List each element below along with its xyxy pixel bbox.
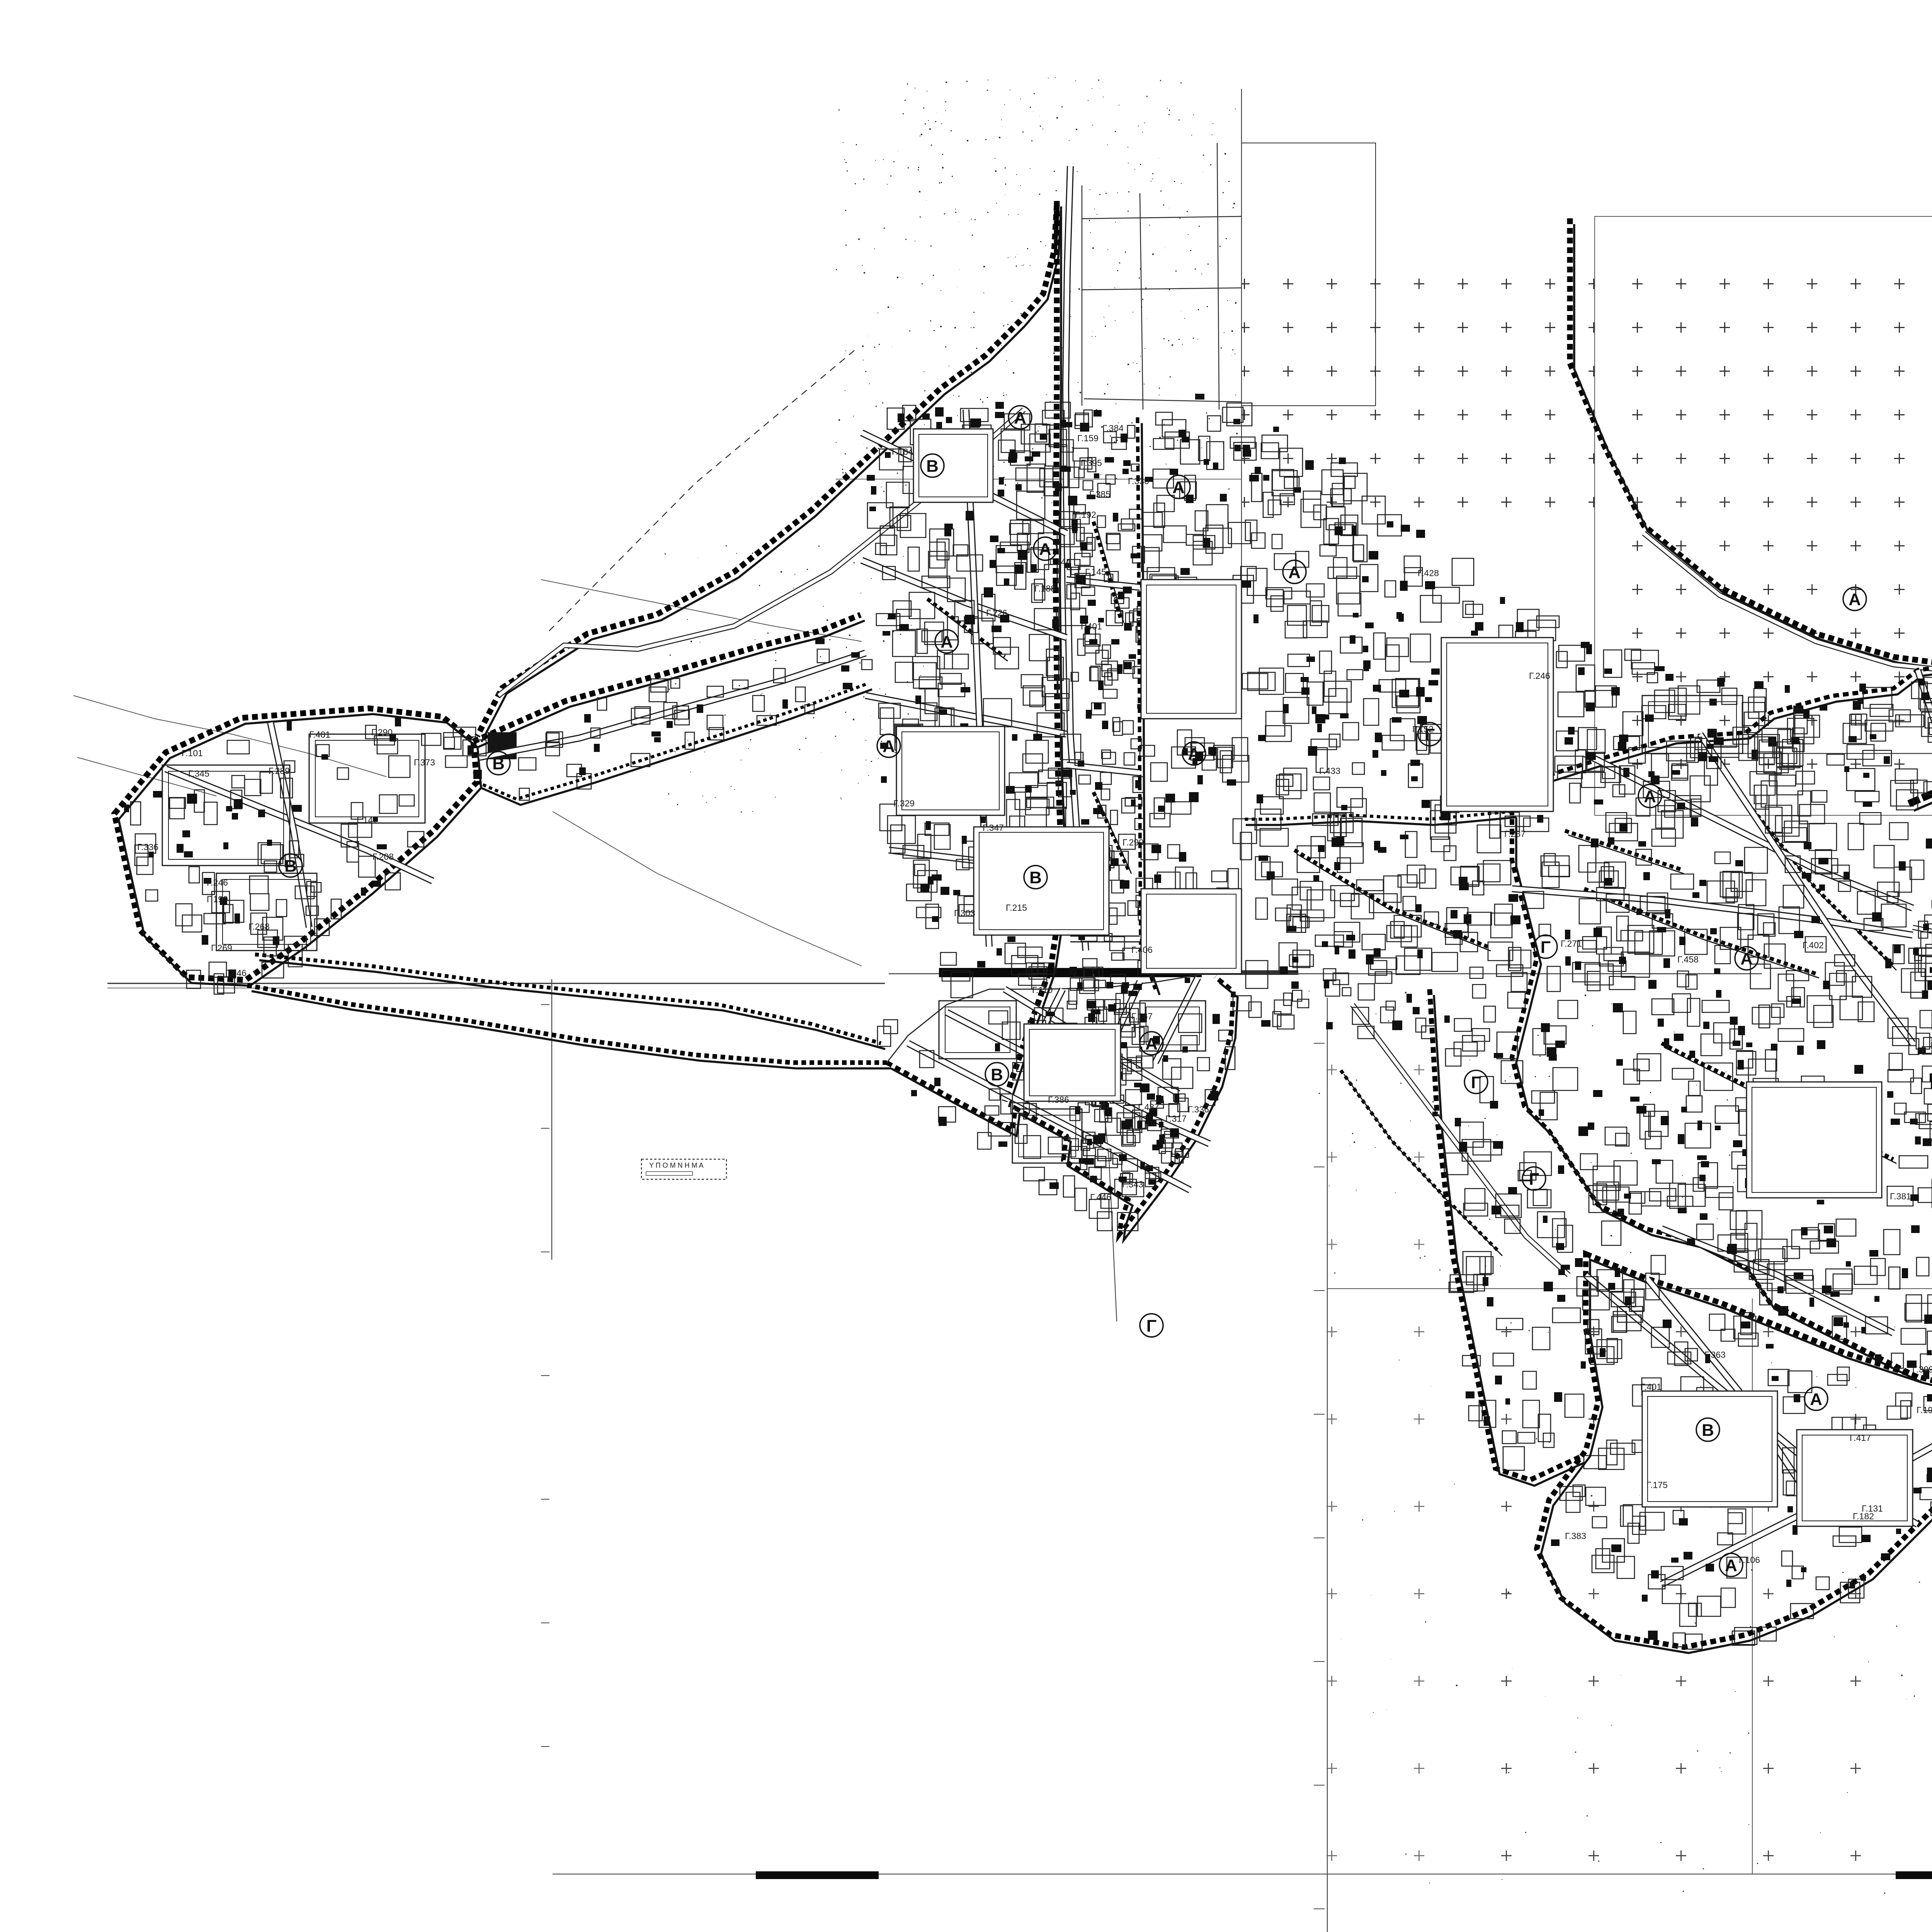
svg-text:A: A <box>1849 590 1861 609</box>
svg-text:Γ.271: Γ.271 <box>1561 939 1582 949</box>
svg-text:Γ.215: Γ.215 <box>1006 903 1027 913</box>
svg-text:Γ.175: Γ.175 <box>1646 1480 1668 1490</box>
svg-text:B: B <box>492 754 505 773</box>
svg-text:Γ.192: Γ.192 <box>1075 510 1096 520</box>
svg-text:Γ.289: Γ.289 <box>269 766 290 776</box>
svg-text:Γ.437: Γ.437 <box>1138 1102 1159 1112</box>
svg-text:Γ.329: Γ.329 <box>893 798 915 808</box>
svg-text:Γ.347: Γ.347 <box>983 823 1004 833</box>
svg-text:Γ.406: Γ.406 <box>1131 945 1153 955</box>
svg-text:Γ.384: Γ.384 <box>1102 423 1124 433</box>
svg-text:Γ.401: Γ.401 <box>1640 1382 1662 1392</box>
svg-text:Γ.401: Γ.401 <box>309 730 330 740</box>
svg-text:A: A <box>1725 1556 1737 1575</box>
svg-text:B: B <box>284 857 297 876</box>
svg-text:Γ.131: Γ.131 <box>1862 1503 1883 1514</box>
svg-text:Γ.446: Γ.446 <box>1090 1192 1111 1202</box>
svg-text:Γ.317: Γ.317 <box>1165 1114 1187 1124</box>
svg-text:B: B <box>1029 868 1042 887</box>
svg-text:Γ.303: Γ.303 <box>954 908 975 918</box>
svg-text:A: A <box>1188 745 1200 764</box>
svg-text:Γ.336: Γ.336 <box>1188 1104 1209 1114</box>
svg-text:Γ.167: Γ.167 <box>1131 1011 1153 1021</box>
svg-text:Γ.226: Γ.226 <box>986 608 1007 618</box>
svg-text:Γ.373: Γ.373 <box>414 757 435 767</box>
svg-text:Γ.346: Γ.346 <box>225 968 247 978</box>
svg-text:A: A <box>1740 949 1753 968</box>
svg-text:B: B <box>1702 1421 1714 1440</box>
svg-text:Γ.381: Γ.381 <box>1890 1191 1911 1201</box>
svg-text:Γ.106: Γ.106 <box>1739 1555 1760 1565</box>
svg-text:Γ.188: Γ.188 <box>1034 583 1056 594</box>
svg-text:Γ.199: Γ.199 <box>207 894 228 904</box>
svg-text:Γ.110: Γ.110 <box>1032 985 1053 995</box>
svg-text:Γ.152: Γ.152 <box>1412 724 1434 734</box>
svg-text:Γ.428: Γ.428 <box>1418 568 1439 578</box>
svg-text:B: B <box>991 1065 1003 1084</box>
svg-text:Γ: Γ <box>1146 1316 1156 1335</box>
svg-text:Γ.330: Γ.330 <box>1128 476 1149 486</box>
svg-text:Γ.417: Γ.417 <box>1850 1433 1871 1443</box>
svg-text:Γ.193: Γ.193 <box>1917 1405 1932 1415</box>
svg-text:A: A <box>1172 478 1185 497</box>
svg-text:Γ.269: Γ.269 <box>211 943 232 953</box>
svg-text:Γ.268: Γ.268 <box>248 922 270 932</box>
svg-text:Γ: Γ <box>1529 1170 1539 1189</box>
svg-text:A: A <box>1810 1390 1822 1409</box>
svg-text:Γ.290: Γ.290 <box>371 727 393 737</box>
svg-text:Γ.363: Γ.363 <box>1704 1350 1726 1360</box>
svg-text:Γ.147: Γ.147 <box>357 815 378 825</box>
svg-text:Γ.401: Γ.401 <box>1081 621 1102 631</box>
svg-text:Γ.145: Γ.145 <box>1085 567 1106 577</box>
svg-text:Γ.237: Γ.237 <box>1504 829 1526 839</box>
svg-text:Γ.144: Γ.144 <box>1049 557 1071 567</box>
svg-text:Γ.184: Γ.184 <box>892 447 913 457</box>
svg-text:Γ.309: Γ.309 <box>1912 1364 1932 1374</box>
svg-text:A: A <box>1145 1034 1158 1053</box>
svg-text:Γ.386: Γ.386 <box>1048 1095 1069 1105</box>
svg-text:Γ: Γ <box>1471 1073 1481 1092</box>
svg-text:Γ.458: Γ.458 <box>1677 954 1699 964</box>
svg-text:Γ.208: Γ.208 <box>372 852 394 862</box>
svg-text:A: A <box>1039 540 1051 559</box>
svg-text:Γ.433: Γ.433 <box>1319 766 1340 776</box>
svg-text:Γ.336: Γ.336 <box>137 842 158 852</box>
svg-text:Γ.383: Γ.383 <box>1565 1531 1586 1541</box>
svg-text:Γ.395: Γ.395 <box>1081 458 1102 468</box>
svg-text:A: A <box>1644 787 1656 806</box>
svg-text:Γ.385: Γ.385 <box>1089 489 1111 499</box>
svg-text:Γ: Γ <box>1541 938 1551 957</box>
svg-text:Γ.345: Γ.345 <box>188 769 209 779</box>
svg-text:A: A <box>1288 563 1301 582</box>
svg-text:A: A <box>1014 408 1026 427</box>
svg-text:Γ.101: Γ.101 <box>182 748 203 758</box>
svg-text:Γ.299: Γ.299 <box>1122 837 1144 847</box>
svg-text:A: A <box>940 633 953 651</box>
svg-text:Γ.159: Γ.159 <box>1077 433 1099 443</box>
svg-text:Γ.246: Γ.246 <box>207 878 228 888</box>
svg-text:A: A <box>883 737 895 756</box>
svg-text:Γ.402: Γ.402 <box>1803 940 1824 950</box>
svg-text:B: B <box>926 457 939 476</box>
svg-text:Y Π Ο Μ Ν Η Μ Α: Y Π Ο Μ Ν Η Μ Α <box>649 1162 704 1169</box>
svg-text:Γ.246: Γ.246 <box>1529 671 1550 681</box>
svg-text:Γ.343: Γ.343 <box>1122 1179 1143 1189</box>
